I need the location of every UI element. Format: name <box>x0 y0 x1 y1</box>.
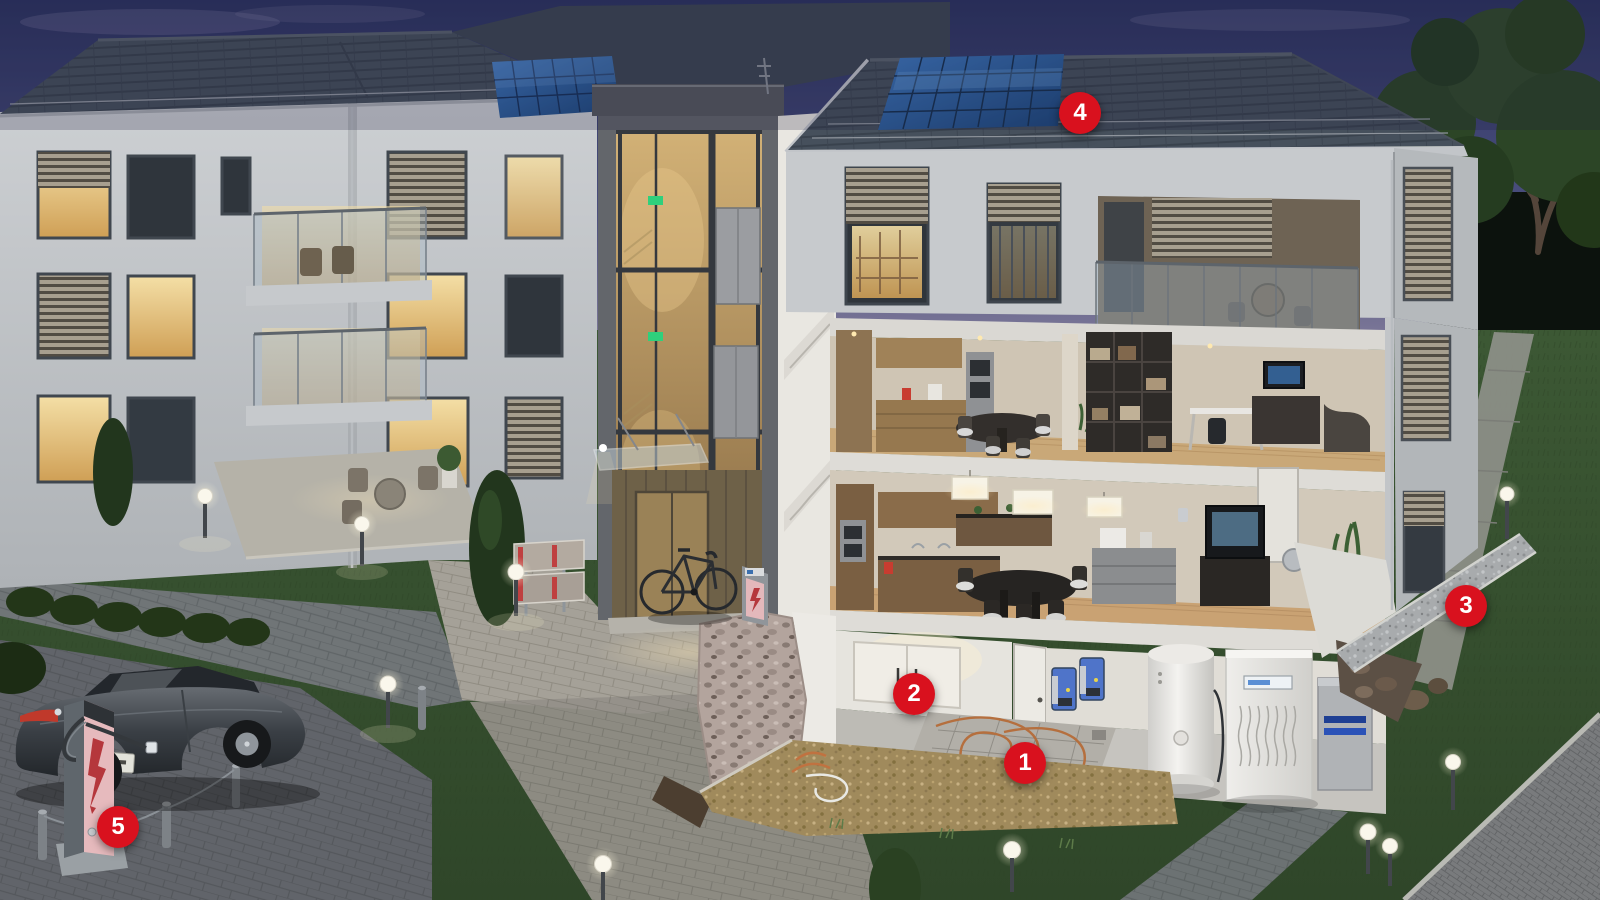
window[interactable] <box>506 276 562 356</box>
ground-terrace <box>214 445 486 558</box>
media-sideboard <box>1252 396 1320 444</box>
coffee-machine <box>884 562 893 574</box>
window-small[interactable] <box>222 158 250 214</box>
office-desk <box>1190 408 1262 414</box>
partition-wall <box>1062 334 1078 450</box>
floor2-interior <box>830 330 1385 472</box>
window-interior-lit <box>852 226 922 298</box>
hotspot-marker-2-label: 2 <box>907 682 920 706</box>
kitchen-counter <box>876 400 966 452</box>
balcony-glass-railing <box>254 328 426 412</box>
oven <box>844 526 862 539</box>
battery-display <box>1324 728 1366 735</box>
hotspot-marker-5-label: 5 <box>111 815 124 839</box>
cypress-highlight <box>478 490 502 550</box>
shadow <box>1222 795 1318 813</box>
countertop-appliance <box>1100 528 1126 548</box>
dusk-haze <box>0 0 1600 130</box>
terrace-table <box>375 479 405 509</box>
scene-artwork <box>0 0 1600 900</box>
small-appliance <box>928 384 942 400</box>
car-badge <box>55 709 62 716</box>
balcony-upper <box>246 206 432 306</box>
hotspot-marker-5[interactable]: 5 <box>97 806 139 848</box>
ceiling-spot <box>1208 344 1213 349</box>
balcony-window-blind <box>1152 198 1272 258</box>
terrace-chair <box>348 468 368 492</box>
island-plant <box>974 506 982 514</box>
window-blind <box>1404 492 1444 526</box>
patio-chair <box>300 248 322 276</box>
stone <box>1355 686 1373 698</box>
window[interactable] <box>128 398 194 482</box>
plant-pot <box>442 468 457 488</box>
oven <box>844 544 862 557</box>
kitchen-tall-unit <box>836 330 872 452</box>
kitchen-island <box>956 516 1052 546</box>
table-leg <box>1000 590 1008 618</box>
exit-sign-icon <box>648 196 663 205</box>
hotspot-marker-4[interactable]: 4 <box>1059 92 1101 134</box>
boulder <box>1428 678 1448 694</box>
tv-picture <box>1212 512 1258 546</box>
charger-socket <box>88 828 96 836</box>
picture-frame <box>1140 532 1152 548</box>
car-shadow <box>16 777 320 811</box>
exit-sign-icon <box>648 332 663 341</box>
hotspot-marker-3[interactable]: 3 <box>1445 585 1487 627</box>
window-lit[interactable] <box>506 156 562 238</box>
sideboard <box>1092 548 1176 604</box>
side-window-shuttered[interactable] <box>1404 168 1452 300</box>
wall-spotlight <box>599 444 607 452</box>
heat-pump[interactable] <box>1226 650 1312 800</box>
ceiling-spot <box>978 336 983 341</box>
stairwell-glow <box>620 168 704 312</box>
oven <box>970 382 990 398</box>
tv-lowboard <box>1200 556 1270 606</box>
coffee-machine <box>902 388 911 400</box>
balcony-lower <box>246 328 432 426</box>
door-handle <box>1038 698 1043 703</box>
hotspot-marker-1[interactable]: 1 <box>1004 742 1046 784</box>
potted-plant <box>437 445 461 471</box>
window-shuttered[interactable] <box>38 274 110 358</box>
window-shuttered[interactable] <box>506 398 562 478</box>
side-window-shuttered[interactable] <box>1402 336 1450 440</box>
hotspot-marker-2[interactable]: 2 <box>893 673 935 715</box>
wall-thermostat <box>1178 508 1188 522</box>
ceiling-spot <box>852 332 857 337</box>
stone <box>1375 677 1397 691</box>
kitchen-wall-cabinets <box>876 338 962 368</box>
hotspot-marker-3-label: 3 <box>1459 594 1472 618</box>
oven <box>970 360 990 376</box>
patio-chair <box>332 246 354 274</box>
window-blind <box>38 152 110 188</box>
window-lit[interactable] <box>128 276 194 358</box>
hotspot-marker-4-label: 4 <box>1073 101 1086 125</box>
building-energy-cutaway-scene: 1 2 3 4 5 <box>0 0 1600 900</box>
terrace-chair <box>418 466 438 490</box>
battery-display <box>1324 716 1366 723</box>
window-blind <box>988 184 1060 222</box>
tv-picture <box>1268 366 1300 384</box>
display-readout <box>1248 680 1270 685</box>
wheel-hub <box>244 741 249 746</box>
cypress-tree <box>93 418 133 526</box>
table-leg <box>1032 592 1040 620</box>
charger-pillar-side <box>64 700 84 858</box>
hotspot-marker-1-label: 1 <box>1018 751 1031 775</box>
charge-port <box>146 742 157 753</box>
heating-manifold <box>1092 730 1106 740</box>
window[interactable] <box>128 156 194 238</box>
ebike-charging-box[interactable] <box>742 566 768 626</box>
window-blind <box>846 168 928 224</box>
office-chair <box>1208 418 1226 444</box>
